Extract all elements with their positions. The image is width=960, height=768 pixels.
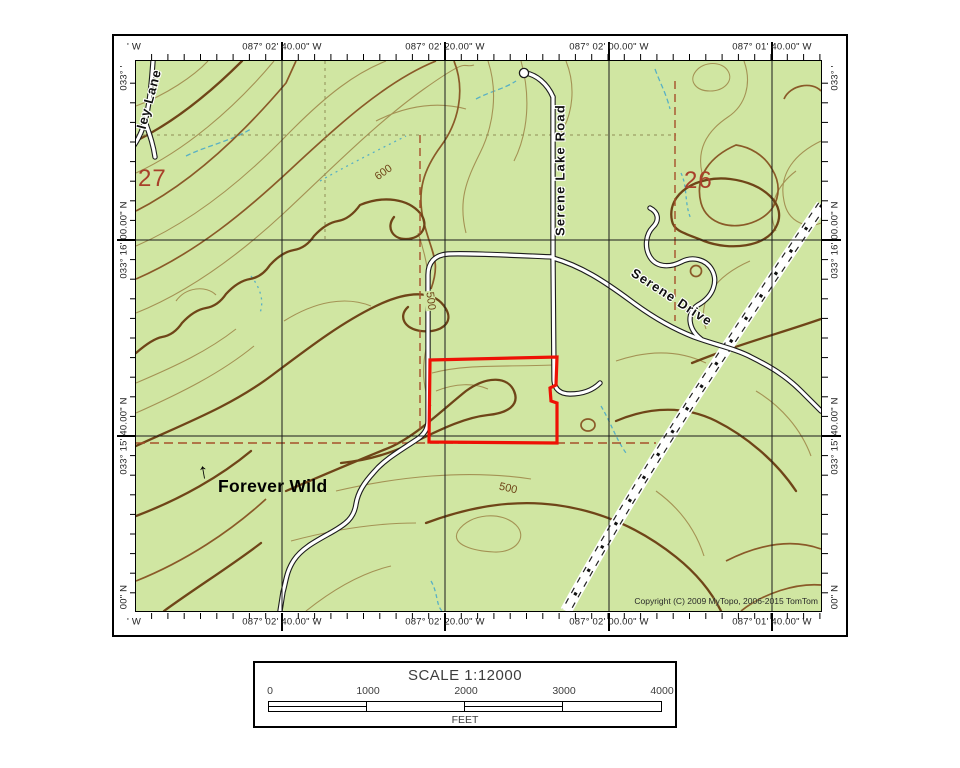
- lon-label-bottom-4: 087° 01' 40.00" W: [732, 617, 811, 628]
- topo-map: 27 26 Serene Lake Road Serene Drive ley …: [135, 60, 822, 612]
- lon-label-top-2: 087° 02' 20.00" W: [405, 42, 484, 53]
- scale-tick-0: 0: [267, 685, 273, 697]
- lat-label-left-2: 033° 15' 40.00" N: [119, 397, 130, 474]
- lon-label-bottom-partial: ' W: [127, 617, 141, 628]
- lat-label-left-1: 033° 16' 00.00" N: [119, 201, 130, 278]
- contours-intermediate: [136, 61, 821, 611]
- roads-casing: [136, 61, 821, 611]
- lon-label-bottom-1: 087° 02' 40.00" W: [242, 617, 321, 628]
- contour-label-500-upper: 500: [423, 290, 436, 312]
- section-number-27: 27: [138, 167, 167, 191]
- page: ' W 087° 02' 40.00" W 087° 02' 20.00" W …: [0, 0, 960, 768]
- lon-label-top-4: 087° 01' 40.00" W: [732, 42, 811, 53]
- road-label-serene-lake-road: Serene Lake Road: [554, 104, 567, 236]
- scale-tick-3000: 3000: [552, 685, 575, 697]
- scale-tick-4000: 4000: [650, 685, 673, 697]
- cul-de-sac: [519, 68, 528, 77]
- scale-unit: FEET: [255, 714, 675, 726]
- scale-title: SCALE 1:12000: [255, 667, 675, 684]
- grid-lines: [136, 61, 821, 611]
- contours-index: [136, 61, 821, 611]
- scale-tick-2000: 2000: [454, 685, 477, 697]
- lat-label-right-partial-bottom: 00" N: [830, 585, 841, 609]
- section-number-26: 26: [684, 169, 713, 193]
- lat-label-left-partial-bottom: 00" N: [119, 585, 130, 609]
- contours-medium: [136, 61, 821, 611]
- lon-label-top-1: 087° 02' 40.00" W: [242, 42, 321, 53]
- copyright-notice: Copyright (C) 2009 MyTopo, 2006-2015 Tom…: [634, 596, 818, 606]
- scale-tick-1000: 1000: [356, 685, 379, 697]
- scale-bar: SCALE 1:12000 0 1000 2000 3000 4000 FEET: [253, 661, 677, 728]
- scale-bar-graphic: [268, 701, 662, 712]
- forever-wild-label: Forever Wild: [218, 478, 327, 496]
- lat-label-right-partial-top: 033° ': [830, 65, 841, 90]
- lon-label-bottom-2: 087° 02' 20.00" W: [405, 617, 484, 628]
- lon-label-top-partial: ' W: [127, 42, 141, 53]
- lon-label-top-3: 087° 02' 00.00" W: [569, 42, 648, 53]
- lat-label-left-partial-top: 033° ': [119, 65, 130, 90]
- lon-label-bottom-3: 087° 02' 00.00" W: [569, 617, 648, 628]
- lat-label-right-2: 033° 15' 40.00" N: [830, 397, 841, 474]
- lat-label-right-1: 033° 16' 00.00" N: [830, 201, 841, 278]
- roads-fill: [136, 61, 821, 611]
- map-artwork: [136, 61, 821, 611]
